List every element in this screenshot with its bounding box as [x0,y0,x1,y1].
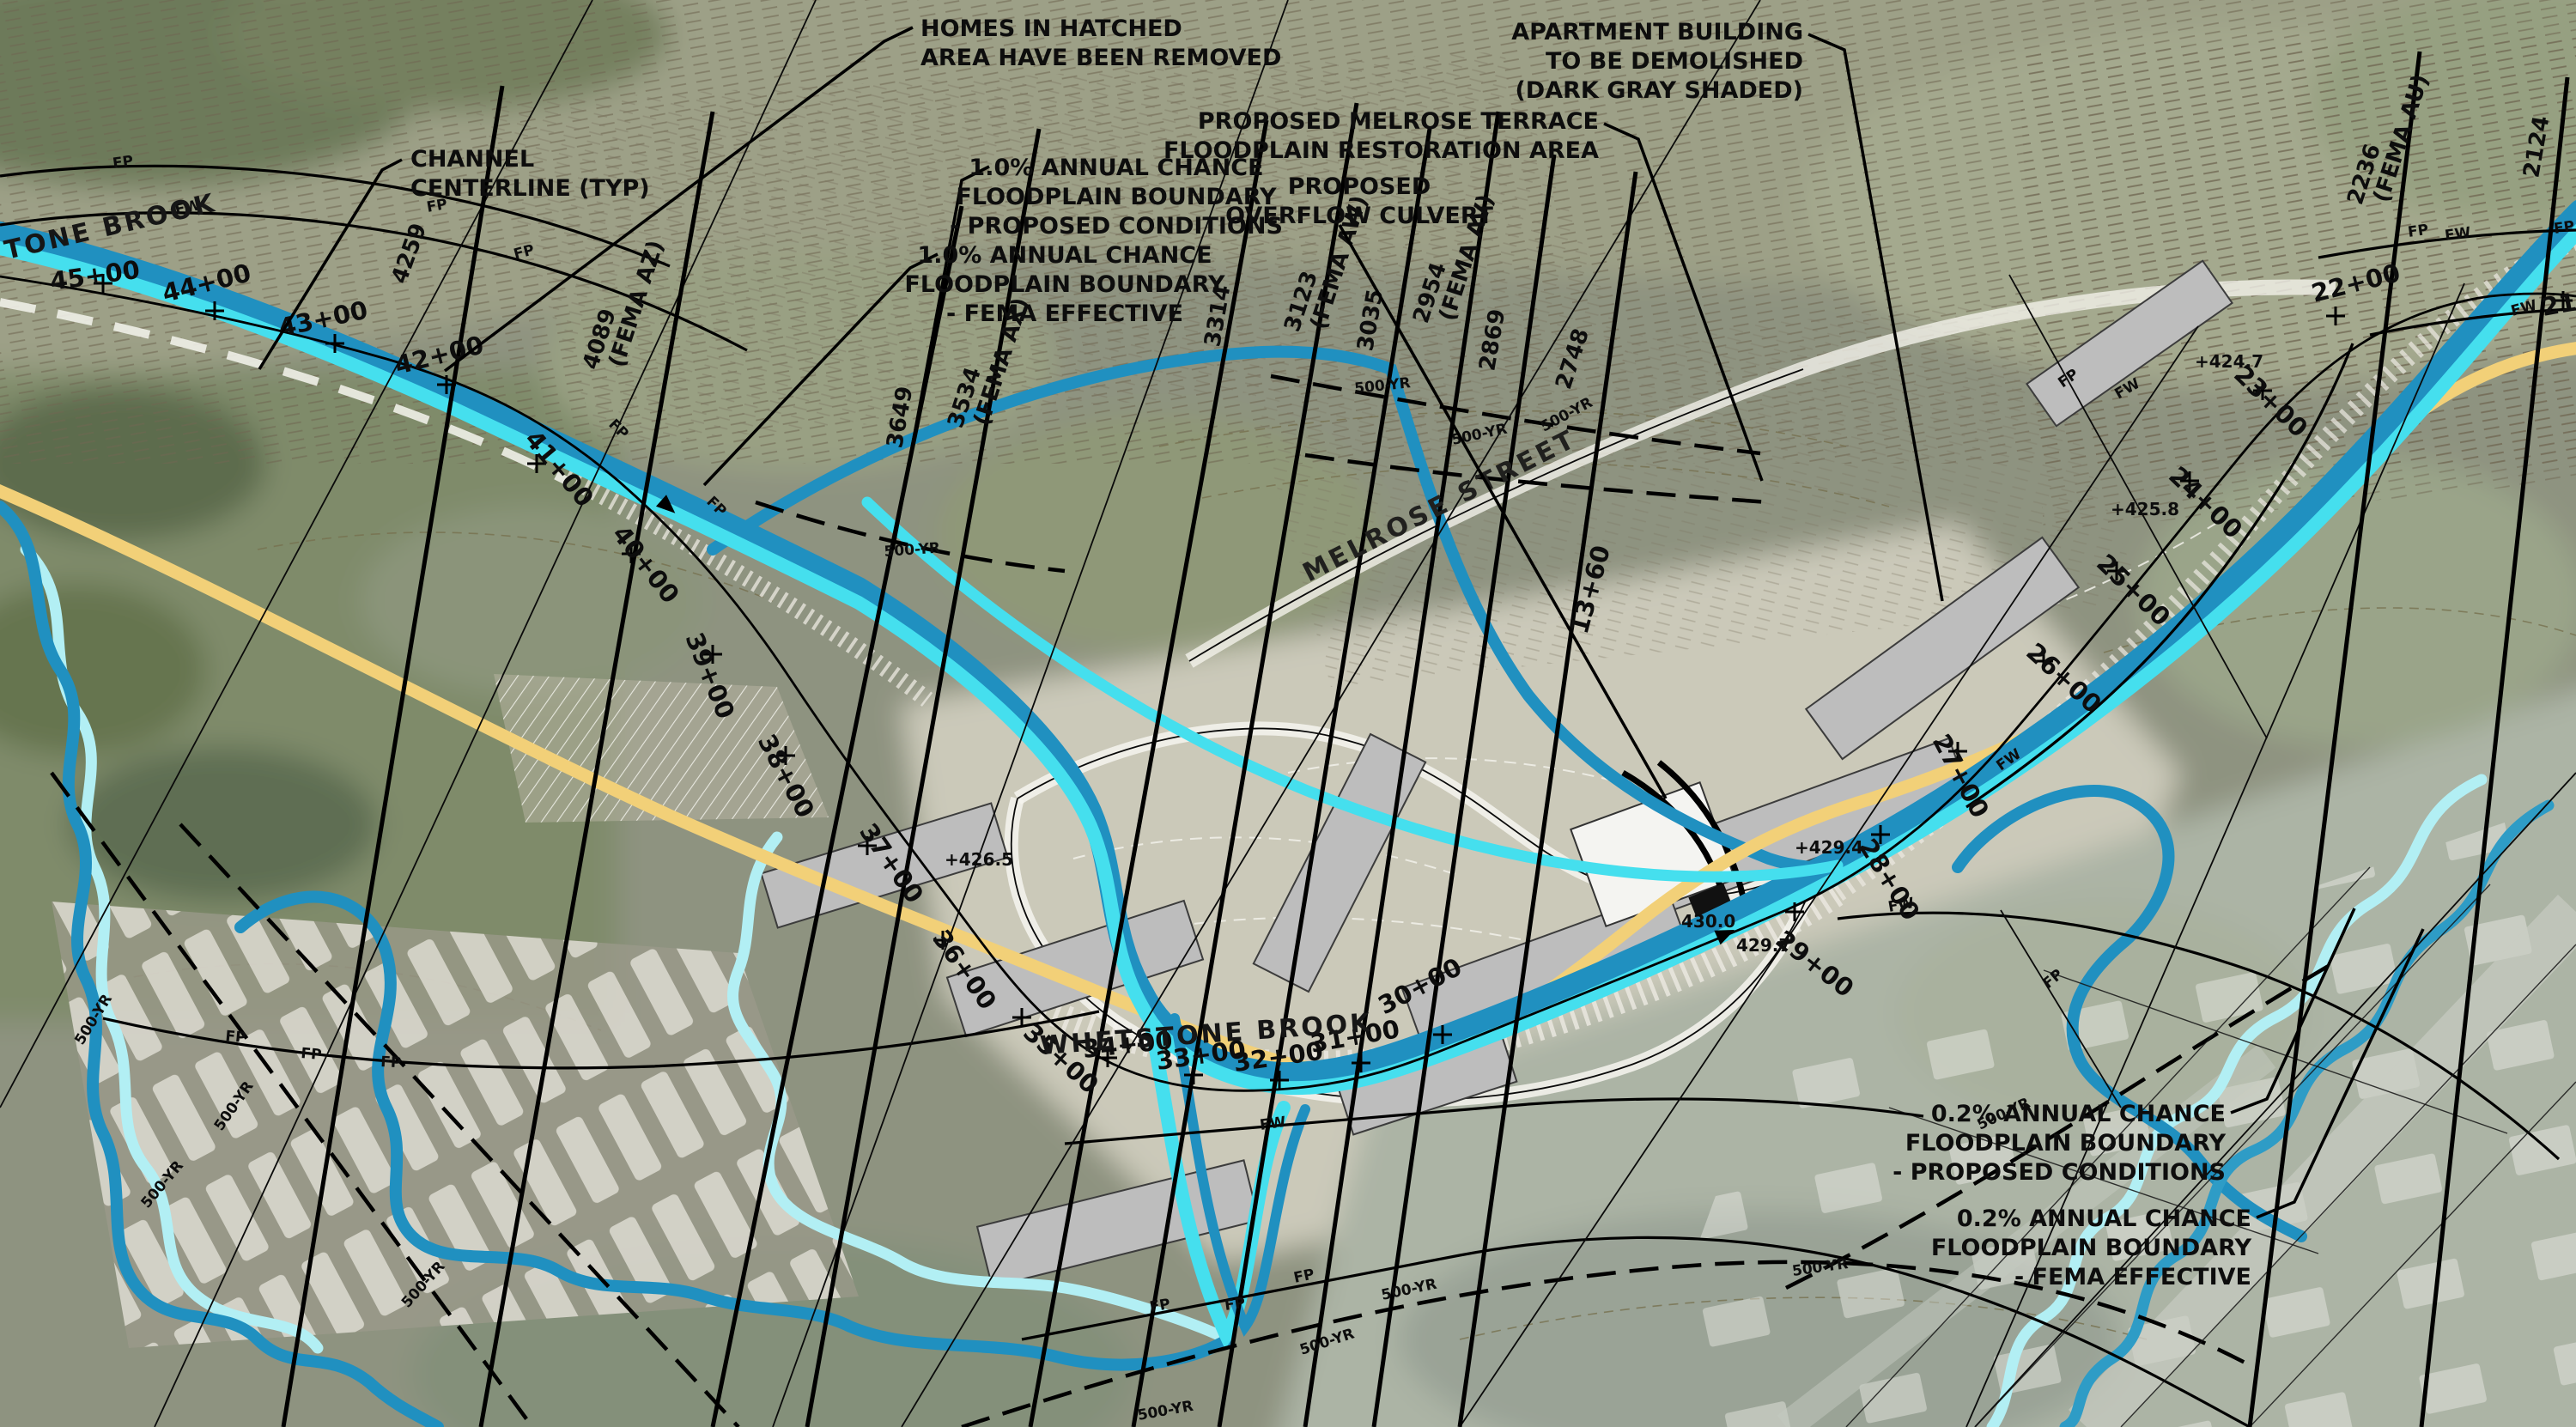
fp-tag: FP [301,1045,323,1064]
callout-text: - FEMA EFFECTIVE [946,301,1183,327]
callout-text: 0.2% ANNUAL CHANCE [1931,1101,2226,1127]
fp-tag: FP [112,153,135,173]
callout-text: FLOODPLAIN BOUNDARY [1931,1235,2252,1261]
spot-elevation: +429.4 [1795,837,1863,858]
spot-elevation: +425.8 [2111,499,2179,519]
spot-elevation: +426.5 [945,849,1013,870]
callout-text: CHANNEL [410,146,534,173]
fw-tag: FW [2444,224,2472,245]
fp-tag: FP [225,1028,247,1047]
callout-text: APARTMENT BUILDING [1511,19,1803,46]
callout-text: PROPOSED MELROSE TERRACE [1198,108,1599,135]
callout-text: - PROPOSED CONDITIONS [1893,1159,2226,1186]
callout-fp1-fema: 1.0% ANNUAL CHANCE FLOODPLAIN BOUNDARY -… [904,242,1225,327]
fw-tag: FW [1259,1114,1287,1134]
floodplain-map-figure: 4259 4089(FEMA AZ) 3649 3534(FEMA AX) 33… [0,0,2576,1427]
callout-text: - FEMA EFFECTIVE [2014,1264,2251,1290]
callout-text: FLOODPLAIN BOUNDARY [904,271,1225,298]
callout-text: 0.2% ANNUAL CHANCE [1957,1205,2251,1232]
fp-tag: FP [2407,222,2430,241]
callout-text: 1.0% ANNUAL CHANCE [917,242,1212,269]
callout-text: TO BE DEMOLISHED [1546,48,1803,75]
callout-text: 1.0% ANNUAL CHANCE [969,155,1263,181]
callout-text: FLOODPLAIN BOUNDARY [1905,1130,2227,1157]
spot-elevation: +424.7 [2195,351,2263,372]
callout-fp02-proposed: 0.2% ANNUAL CHANCE FLOODPLAIN BOUNDARY -… [1893,1101,2226,1186]
spot-elevation: 429.7 [1736,935,1790,956]
callout-text: CENTERLINE (TYP) [410,175,650,202]
callout-text: (DARK GRAY SHADED) [1515,77,1803,104]
fp-tag: FP [1148,1296,1171,1316]
callout-text: AREA HAVE BEEN REMOVED [920,45,1281,71]
callout-text: HOMES IN HATCHED [920,15,1182,42]
floodplain-map: 4259 4089(FEMA AZ) 3649 3534(FEMA AX) 33… [0,0,2576,1427]
fp-tag: FP [1224,1295,1247,1315]
callout-text: PROPOSED [1288,173,1431,200]
spot-elevation: 430.0 [1681,911,1735,932]
callout-apartment-demolished: APARTMENT BUILDING TO BE DEMOLISHED (DAR… [1511,19,1803,104]
fp-tag: FP [2553,218,2576,238]
callout-text: OVERFLOW CULVERT [1225,203,1493,229]
fp-tag: FP [380,1054,402,1072]
